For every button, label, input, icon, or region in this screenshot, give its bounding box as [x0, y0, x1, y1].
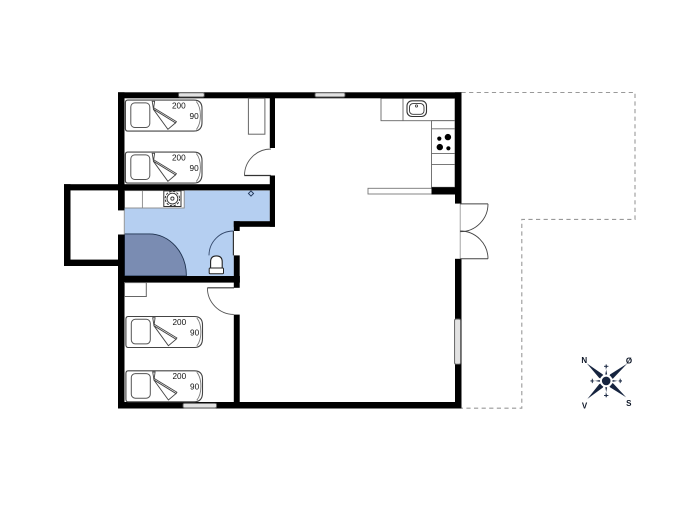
svg-text:N: N	[581, 356, 587, 365]
svg-text:V: V	[582, 401, 588, 410]
svg-text:Ø: Ø	[626, 357, 632, 366]
svg-text:S: S	[626, 399, 632, 408]
